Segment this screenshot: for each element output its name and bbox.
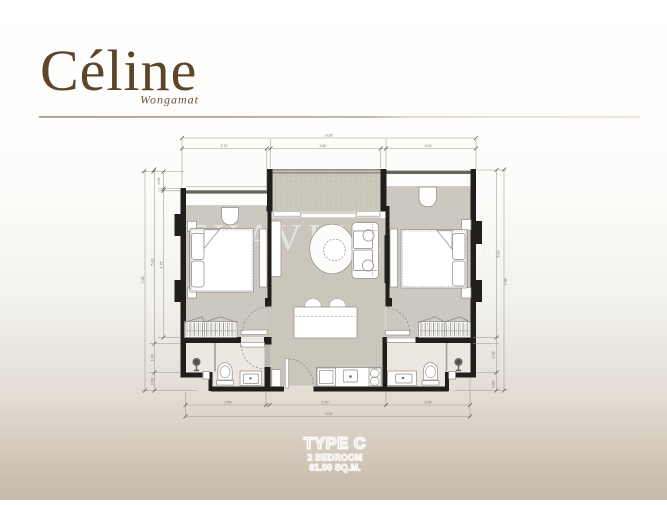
svg-text:2 BEDROOM: 2 BEDROOM (307, 453, 362, 463)
svg-text:3.70: 3.70 (322, 400, 329, 404)
svg-text:7.05: 7.05 (141, 277, 145, 284)
svg-text:0.60: 0.60 (492, 381, 496, 388)
svg-text:Wongamat: Wongamat (140, 93, 199, 107)
svg-text:3.60: 3.60 (320, 144, 327, 148)
svg-text:2.50: 2.50 (225, 400, 232, 404)
svg-text:2.00: 2.00 (425, 400, 432, 404)
svg-text:3.00: 3.00 (425, 144, 432, 148)
svg-text:9.30: 9.30 (326, 134, 333, 138)
svg-text:1.00: 1.00 (150, 355, 154, 362)
svg-text:0.50: 0.50 (157, 178, 161, 185)
svg-text:5.30: 5.30 (150, 259, 154, 266)
svg-text:61.00 SQ.M.: 61.00 SQ.M. (309, 463, 361, 473)
svg-text:4.75: 4.75 (159, 262, 163, 269)
svg-text:5.30: 5.30 (496, 251, 500, 258)
svg-text:0.60: 0.60 (150, 378, 154, 385)
svg-text:TYPE C: TYPE C (304, 436, 367, 453)
svg-text:2.70: 2.70 (221, 144, 228, 148)
svg-text:1.00: 1.00 (492, 352, 496, 359)
svg-text:9.20: 9.20 (326, 412, 333, 416)
svg-text:7.05: 7.05 (504, 279, 508, 286)
